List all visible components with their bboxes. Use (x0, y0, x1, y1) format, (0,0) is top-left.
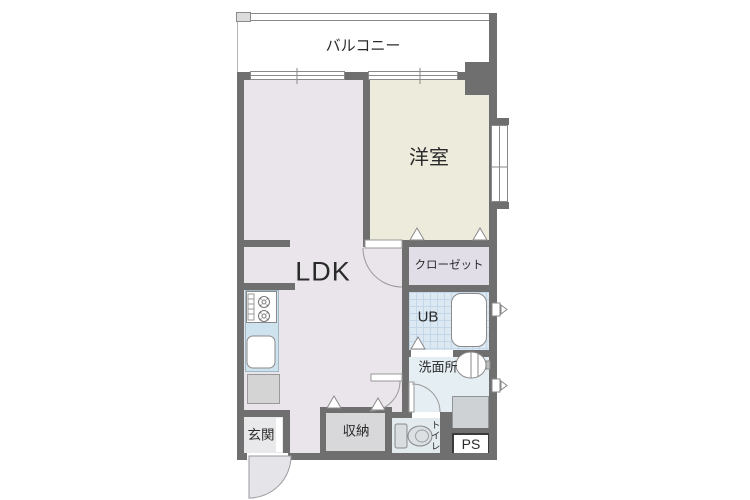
label-unit-bath: UB (418, 310, 439, 325)
label-western-room: 洋室 (409, 148, 449, 168)
western-door-leaf (365, 240, 402, 248)
stove-grill-icon (248, 294, 254, 320)
toilet-fixture-icon (395, 424, 432, 448)
kitchen-sink (247, 336, 275, 368)
vent-marker-icon (492, 303, 507, 392)
fixtures-overlay (0, 0, 750, 500)
opening-triangles (327, 228, 487, 408)
label-storage: 収納 (343, 424, 370, 438)
label-ldk: LDK (295, 259, 351, 286)
western-door-arc (363, 248, 402, 287)
label-washroom: 洗面所 (418, 361, 457, 374)
label-toilet: トイレ (429, 420, 439, 452)
label-balcony: バルコニー (326, 39, 401, 54)
stove-burner-icon (259, 297, 270, 322)
window-mullions (251, 68, 508, 201)
washbasin-icon (456, 352, 490, 378)
toilet-door-leaf (409, 382, 414, 412)
label-pipe-space: PS (462, 437, 481, 451)
label-entrance: 玄関 (248, 428, 275, 442)
washroom-door-triangle (371, 398, 385, 410)
washroom-door-leaf (371, 374, 402, 381)
entrance-door-swing (249, 456, 291, 498)
label-closet: クローゼット (415, 260, 484, 272)
floorplan-canvas: バルコニー 洋室 LDK クローゼット UB 洗面所 トイレ 収納 玄関 PS (0, 0, 750, 500)
toilet-door-arc (412, 384, 440, 412)
